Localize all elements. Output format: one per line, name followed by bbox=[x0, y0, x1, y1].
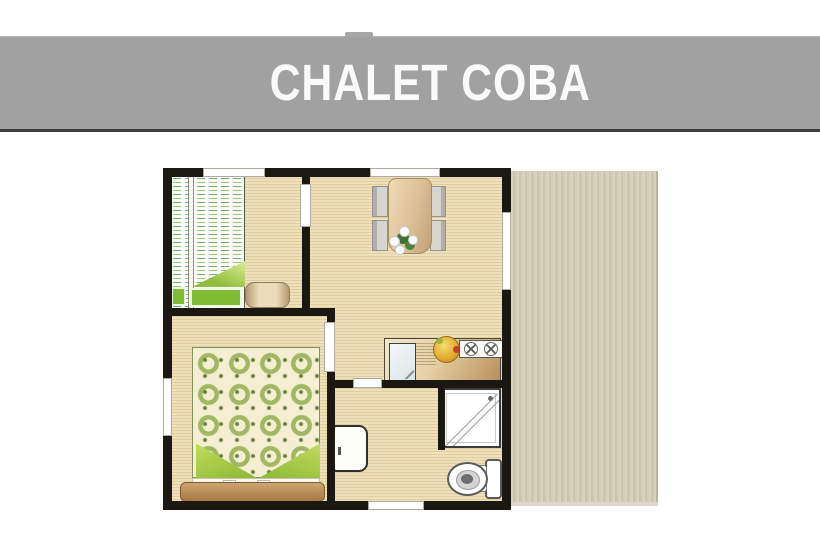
chair-icon bbox=[430, 186, 446, 217]
door-opening-icon bbox=[300, 184, 311, 227]
cabinet-handle bbox=[338, 447, 341, 455]
window-icon bbox=[163, 378, 172, 436]
flower bbox=[408, 235, 418, 245]
ottoman-icon bbox=[245, 282, 290, 308]
door-opening-icon bbox=[353, 378, 382, 388]
faucet-icon bbox=[405, 370, 414, 379]
door-opening-icon bbox=[324, 322, 335, 372]
cabinet-icon bbox=[333, 425, 368, 472]
shower-icon bbox=[441, 388, 501, 448]
window-icon bbox=[203, 168, 265, 177]
wall bbox=[302, 226, 310, 316]
pillow-icon bbox=[190, 288, 242, 307]
sink-icon bbox=[389, 343, 416, 381]
wall bbox=[438, 388, 445, 450]
toilet-seat bbox=[456, 470, 480, 490]
fruit bbox=[436, 338, 443, 344]
wall bbox=[327, 372, 335, 501]
door-opening-icon bbox=[502, 212, 511, 290]
window-icon bbox=[370, 168, 440, 177]
chair-icon bbox=[372, 186, 388, 217]
shower-drain-icon bbox=[488, 396, 493, 401]
stove-icon bbox=[459, 340, 503, 358]
door-opening-icon bbox=[368, 501, 424, 510]
headboard-icon bbox=[180, 482, 325, 502]
burner-icon bbox=[464, 342, 478, 356]
chair-icon bbox=[430, 220, 446, 251]
page: CHALET COBA bbox=[0, 0, 820, 560]
flower bbox=[395, 245, 405, 255]
terrace-shadow bbox=[511, 502, 658, 506]
page-title: CHALET COBA bbox=[66, 37, 755, 129]
chair-icon bbox=[372, 220, 388, 251]
fruit-bowl-icon bbox=[433, 336, 460, 363]
title-banner: CHALET COBA bbox=[0, 36, 820, 132]
wall bbox=[382, 380, 502, 388]
wall bbox=[163, 501, 511, 510]
burner-icon bbox=[484, 342, 498, 356]
flower bbox=[399, 226, 410, 237]
wall bbox=[163, 168, 172, 510]
floor-plan bbox=[163, 168, 658, 510]
terrace-deck-icon bbox=[511, 171, 658, 502]
toilet-icon bbox=[447, 462, 488, 496]
wall bbox=[172, 308, 335, 316]
toilet-bowl-center bbox=[461, 474, 473, 484]
flowers-icon bbox=[387, 224, 419, 254]
wall bbox=[335, 380, 353, 388]
pillow-icon bbox=[171, 287, 186, 306]
kitchen-counter-icon bbox=[384, 338, 501, 382]
